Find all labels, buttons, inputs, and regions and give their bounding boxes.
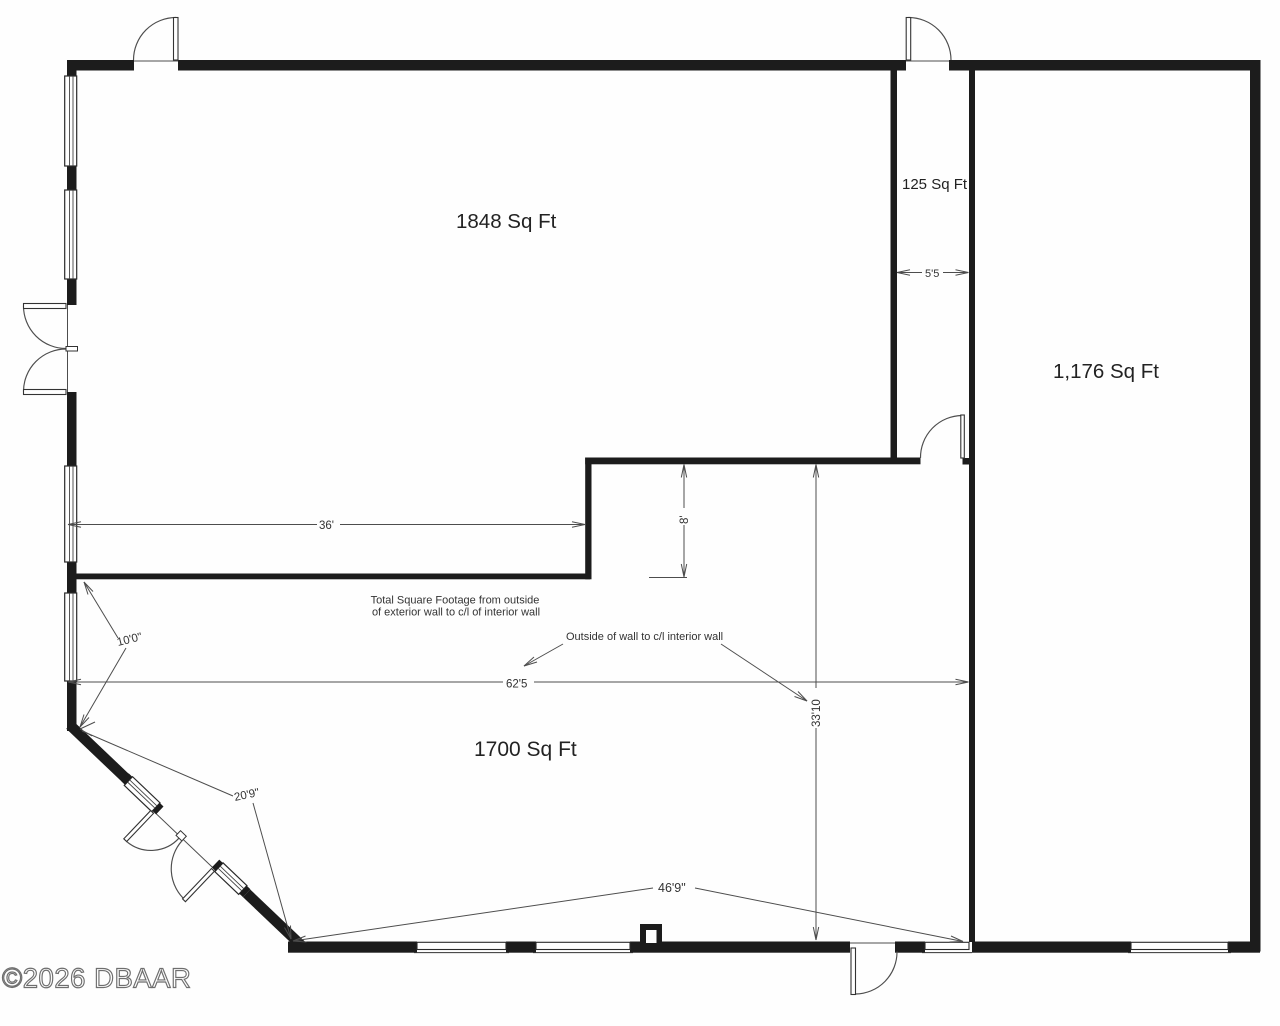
svg-text:125 Sq Ft: 125 Sq Ft — [902, 176, 968, 193]
svg-text:©2026 DBAAR: ©2026 DBAAR — [2, 963, 191, 994]
svg-text:5'5: 5'5 — [925, 268, 939, 280]
svg-text:Outside of wall to c/l interio: Outside of wall to c/l interior wall — [566, 631, 723, 643]
svg-text:1,176 Sq Ft: 1,176 Sq Ft — [1053, 360, 1159, 383]
svg-text:36': 36' — [319, 520, 334, 532]
svg-text:1700 Sq Ft: 1700 Sq Ft — [474, 738, 577, 761]
svg-text:1848 Sq Ft: 1848 Sq Ft — [456, 210, 557, 233]
svg-text:46'9": 46'9" — [658, 881, 686, 895]
svg-text:62'5: 62'5 — [506, 679, 527, 691]
svg-text:33'10: 33'10 — [811, 699, 823, 727]
svg-text:of exterior wall to c/l of int: of exterior wall to c/l of interior wall — [372, 607, 540, 619]
svg-text:8': 8' — [679, 515, 691, 524]
svg-text:Total Square Footage from outs: Total Square Footage from outside — [371, 595, 540, 607]
